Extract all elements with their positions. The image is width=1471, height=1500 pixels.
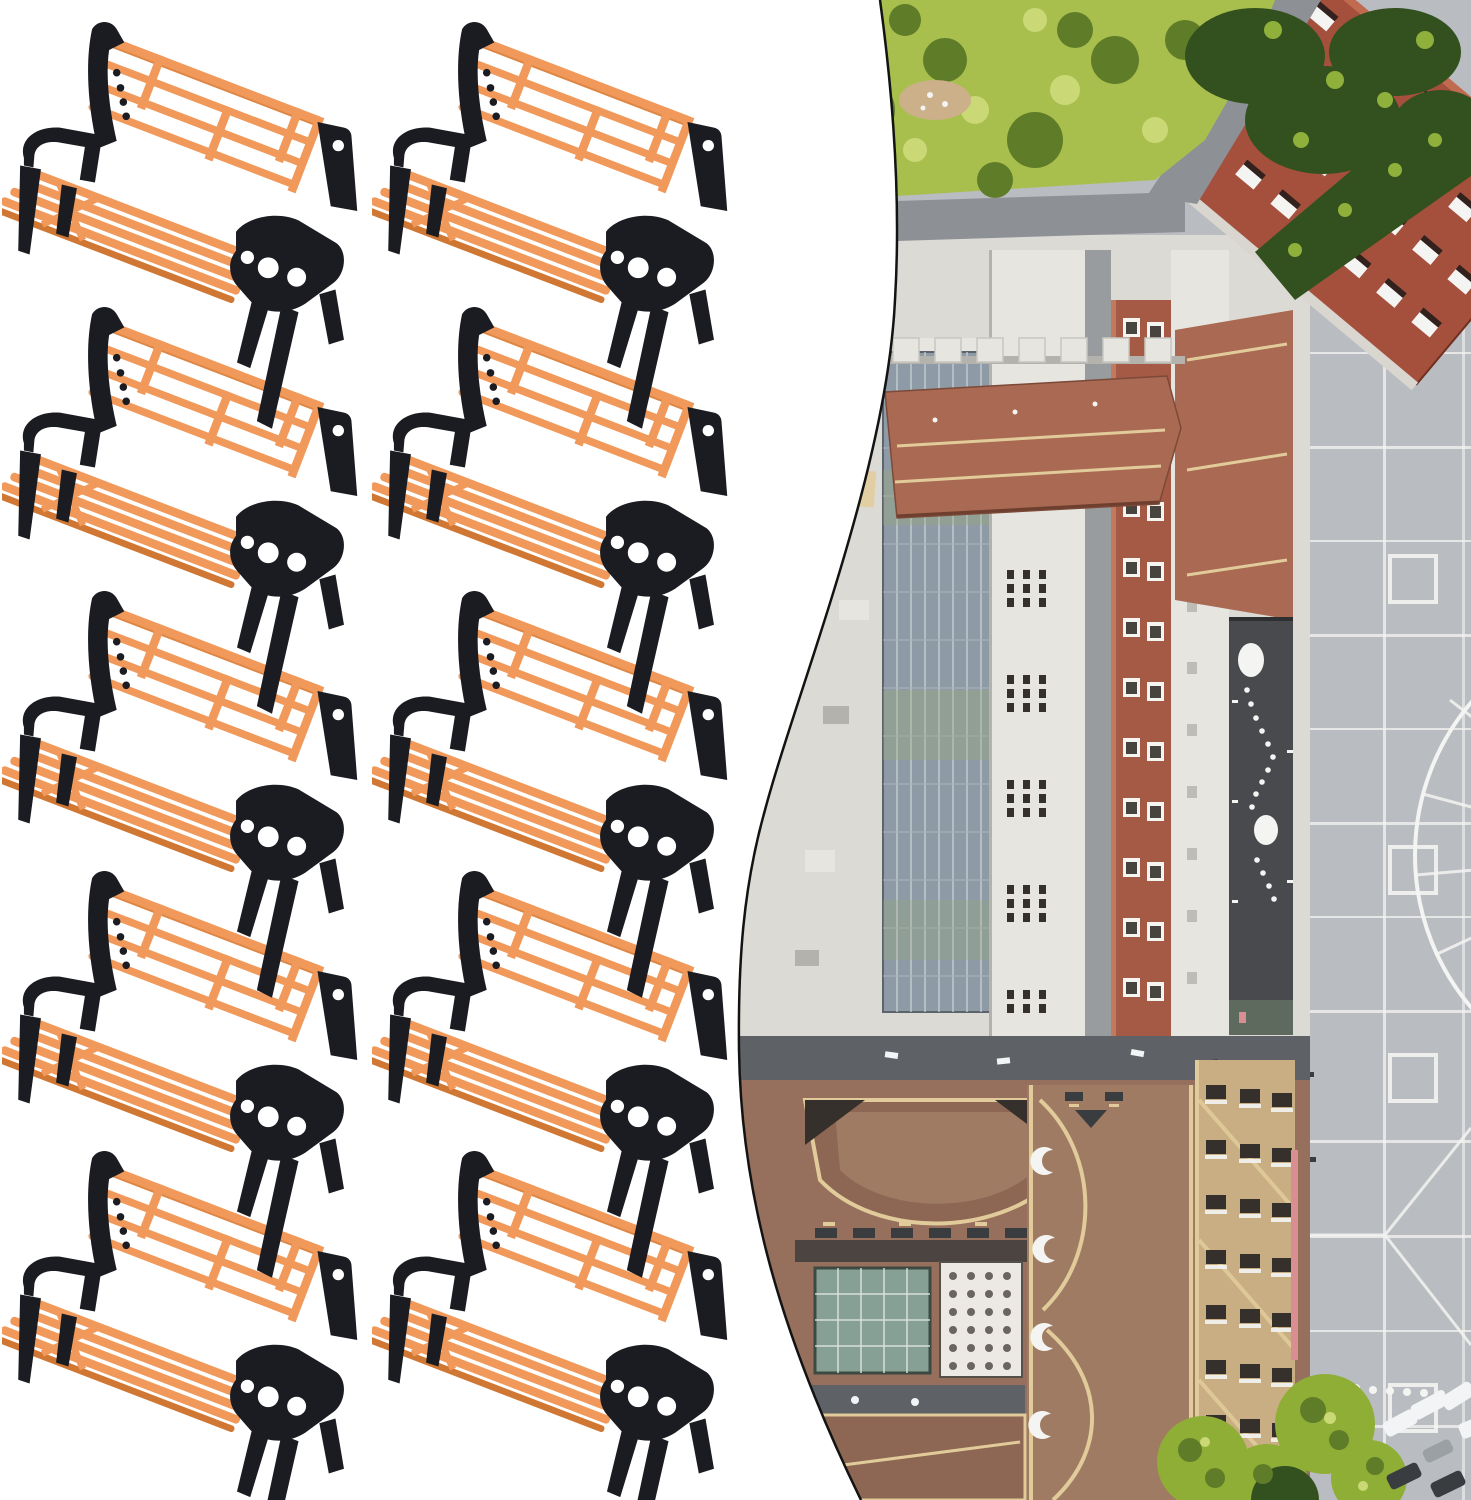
city-building-complex [735,235,1310,1065]
dotted-white-canopy [940,1262,1022,1377]
product-image [0,0,1471,1500]
red-roof-wing [885,376,1181,518]
bench-grid [0,0,735,1500]
dark-roof-walkway [1229,617,1293,1035]
bench-model-2 [372,14,734,442]
bench-model-1 [2,14,364,442]
aerial-map-inset [735,0,1471,1500]
inner-street [1085,250,1111,1065]
white-building [989,250,1085,1065]
greenhouse-roof [815,1268,930,1373]
red-roof-wing-right [1175,310,1293,620]
pink-edge-strip [1291,1150,1298,1360]
